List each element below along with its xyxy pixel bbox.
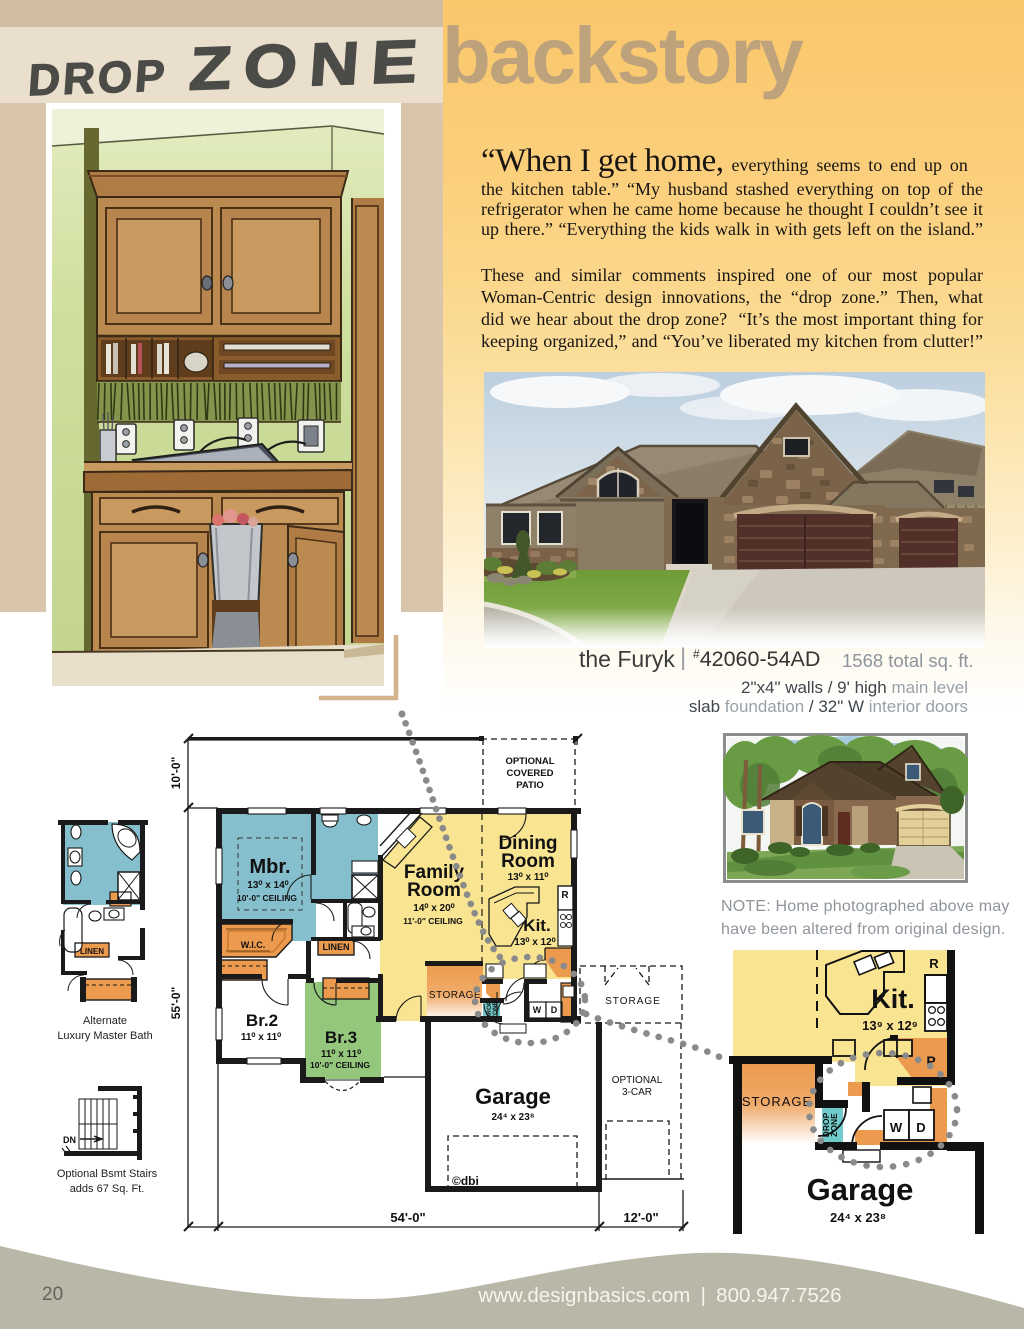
svg-text:12'-0": 12'-0"	[623, 1210, 658, 1225]
svg-text:11'-0" CEILING: 11'-0" CEILING	[403, 916, 463, 926]
svg-text:Room: Room	[407, 880, 461, 901]
svg-text:Mbr.: Mbr.	[249, 856, 290, 878]
svg-text:11⁰ x 11⁰: 11⁰ x 11⁰	[241, 1032, 281, 1043]
svg-text:10'-0" CEILING: 10'-0" CEILING	[237, 893, 297, 903]
svg-text:STORAGE: STORAGE	[742, 1094, 812, 1109]
svg-text:OPTIONAL: OPTIONAL	[505, 756, 554, 767]
svg-text:13⁰ x 11⁰: 13⁰ x 11⁰	[508, 872, 549, 883]
svg-text:13⁰ x 14⁰: 13⁰ x 14⁰	[247, 880, 288, 891]
svg-text:10'-0" CEILING: 10'-0" CEILING	[310, 1060, 370, 1070]
svg-text:Room: Room	[501, 851, 555, 872]
svg-text:adds 67 Sq. Ft.: adds 67 Sq. Ft.	[70, 1183, 145, 1195]
svg-text:L: L	[118, 895, 123, 904]
svg-text:R: R	[929, 956, 939, 971]
svg-text:STORAGE: STORAGE	[605, 996, 661, 1007]
svg-text:Br.3: Br.3	[325, 1028, 357, 1047]
svg-text:LINEN: LINEN	[80, 947, 104, 956]
svg-text:OPTIONAL: OPTIONAL	[612, 1075, 663, 1086]
svg-text:D: D	[916, 1120, 925, 1135]
svg-text:Kit.: Kit.	[523, 916, 550, 935]
svg-text:Garage: Garage	[475, 1084, 551, 1109]
svg-text:D: D	[551, 1005, 558, 1015]
svg-text:24⁴ x 23⁸: 24⁴ x 23⁸	[830, 1210, 886, 1225]
svg-text:Luxury Master Bath: Luxury Master Bath	[57, 1030, 152, 1042]
svg-text:W: W	[890, 1120, 903, 1135]
svg-text:Br.2: Br.2	[246, 1011, 278, 1030]
svg-text:13⁰ x 12⁰: 13⁰ x 12⁰	[514, 937, 555, 948]
svg-text:24⁴ x 23⁸: 24⁴ x 23⁸	[491, 1112, 534, 1123]
svg-text:PATIO: PATIO	[516, 780, 544, 791]
svg-text:W: W	[533, 1005, 542, 1015]
svg-text:Optional Bsmt Stairs: Optional Bsmt Stairs	[57, 1168, 158, 1180]
svg-text:W.I.C.: W.I.C.	[241, 940, 266, 950]
svg-text:54'-0": 54'-0"	[390, 1210, 425, 1225]
svg-text:Kit.: Kit.	[871, 984, 915, 1014]
svg-text:11⁰ x 11⁰: 11⁰ x 11⁰	[321, 1049, 361, 1060]
svg-text:LINEN: LINEN	[323, 942, 350, 952]
svg-text:10'-0": 10'-0"	[169, 757, 183, 790]
svg-text:Alternate: Alternate	[83, 1015, 127, 1027]
svg-text:13⁹ x 12⁹: 13⁹ x 12⁹	[862, 1018, 918, 1033]
svg-text:55'-0": 55'-0"	[169, 987, 183, 1020]
svg-text:20: 20	[42, 1284, 63, 1305]
svg-text:DN: DN	[63, 1135, 76, 1145]
svg-text:COVERED: COVERED	[507, 768, 554, 779]
svg-text:3-CAR: 3-CAR	[622, 1087, 652, 1098]
svg-text:14⁰ x 20⁰: 14⁰ x 20⁰	[413, 903, 454, 914]
svg-text:©dbi: ©dbi	[452, 1174, 479, 1188]
svg-text:www.designbasics.com | 800.947: www.designbasics.com | 800.947.7526	[477, 1284, 841, 1307]
svg-text:ZONE: ZONE	[492, 1000, 499, 1019]
svg-text:R: R	[561, 890, 569, 901]
svg-text:Garage: Garage	[807, 1172, 914, 1207]
